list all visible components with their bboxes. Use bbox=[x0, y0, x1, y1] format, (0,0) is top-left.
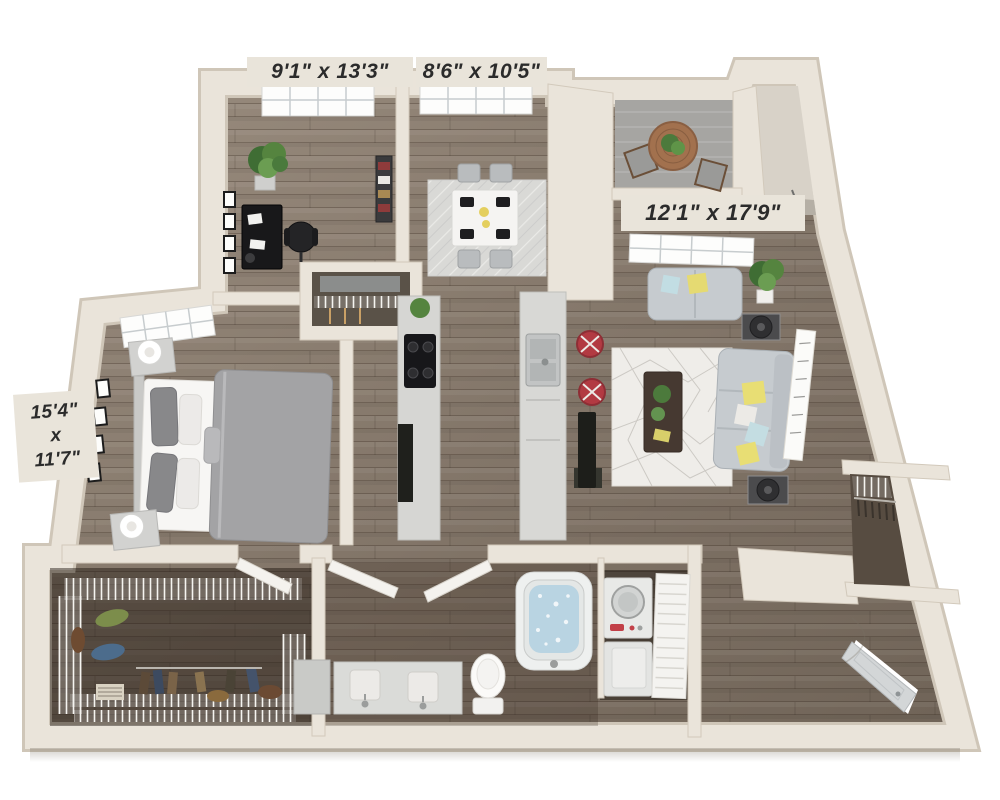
door-handle bbox=[896, 692, 901, 697]
office-window bbox=[262, 84, 374, 116]
vanity-faucet-1 bbox=[362, 701, 369, 708]
sofa bbox=[713, 348, 795, 472]
vanity-faucet-2 bbox=[420, 703, 427, 710]
range-cooktop bbox=[404, 334, 436, 388]
loveseat-pillow-yellow bbox=[687, 273, 708, 294]
desk-paper-2 bbox=[250, 239, 266, 250]
dining-window bbox=[420, 84, 532, 114]
floor-plan-canvas bbox=[0, 0, 1000, 800]
tub-faucet bbox=[550, 660, 558, 668]
coffee-table bbox=[644, 372, 682, 452]
coat-closet-shelf bbox=[852, 476, 892, 498]
tv-bedroom-side bbox=[398, 424, 413, 502]
pantry-wire-shelf bbox=[314, 296, 408, 308]
bedroom-dim-line3: 11'7" bbox=[34, 446, 82, 473]
wall-drop-shadow bbox=[30, 748, 960, 762]
office-dimension-label: 9'1" x 13'3" bbox=[247, 57, 413, 87]
toilet bbox=[471, 654, 505, 714]
desk-paper bbox=[247, 213, 262, 225]
living-dimension-label: 12'1" x 17'9" bbox=[621, 195, 805, 231]
end-table-bottom bbox=[748, 476, 788, 504]
end-table-top bbox=[742, 314, 780, 340]
pantry-shelf-items bbox=[320, 276, 400, 292]
nightstand-bottom bbox=[110, 510, 160, 551]
bath-hall-wall bbox=[688, 545, 701, 737]
sofa-pillow-yellow-1 bbox=[742, 381, 767, 406]
laundry-west-wall bbox=[598, 558, 604, 698]
washer-unit bbox=[604, 642, 652, 696]
south-wall-c bbox=[488, 545, 702, 563]
dining-room bbox=[428, 164, 546, 276]
dryer-controls bbox=[610, 624, 624, 631]
desk-lamp bbox=[245, 253, 255, 263]
living-window bbox=[629, 234, 754, 266]
dining-dimension-label: 8'6" x 10'5" bbox=[416, 57, 547, 87]
bedroom-dim-line2: x bbox=[50, 424, 63, 448]
bath-water bbox=[529, 585, 579, 653]
nightstand-top bbox=[128, 338, 175, 376]
dining-centerpiece-2 bbox=[482, 220, 490, 228]
floor-plan-image: 9'1" x 13'3" 8'6" x 10'5" 12'1" x 17'9" … bbox=[0, 0, 1000, 800]
kitchen-island bbox=[520, 292, 566, 540]
south-wall-a bbox=[62, 545, 238, 563]
dryer-unit bbox=[604, 578, 652, 638]
office-south-wall bbox=[213, 292, 308, 305]
kitchen-faucet bbox=[542, 359, 549, 366]
bed-duvet bbox=[209, 369, 333, 543]
bedroom-dim-line1: 15'4" bbox=[30, 399, 79, 426]
bedroom-dimension-label: 15'4" x 11'7" bbox=[13, 389, 99, 482]
double-vanity bbox=[334, 662, 462, 714]
laundry-closet bbox=[604, 573, 690, 698]
balcony-chair-2 bbox=[695, 159, 727, 191]
bistro-table bbox=[649, 122, 697, 170]
louvered-door bbox=[652, 573, 690, 698]
kitchen-left-counter bbox=[398, 296, 440, 540]
loveseat-pillow-blue bbox=[661, 275, 681, 295]
vanity-side-cabinet bbox=[294, 660, 330, 714]
hall-peninsula-wall bbox=[738, 548, 858, 604]
loveseat bbox=[648, 268, 742, 320]
office-bookshelf bbox=[376, 156, 392, 222]
closet-shelf-bottom-2 bbox=[74, 710, 296, 722]
kitchen-plant bbox=[410, 298, 430, 318]
bathtub bbox=[516, 572, 592, 670]
dining-living-wall bbox=[548, 84, 613, 300]
dining-centerpiece bbox=[479, 207, 489, 217]
